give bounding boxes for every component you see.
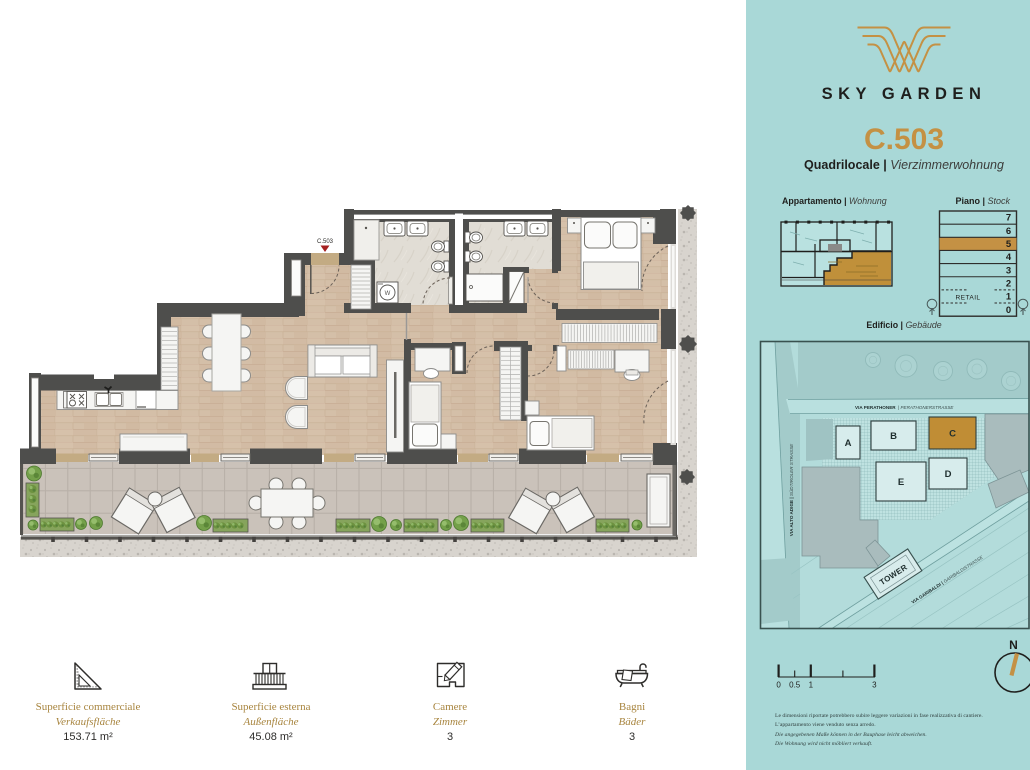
svg-text:0: 0	[776, 681, 781, 690]
svg-text:A: A	[845, 438, 852, 449]
svg-text:3: 3	[872, 681, 877, 690]
svg-text:E: E	[898, 477, 904, 488]
svg-text:B: B	[890, 431, 897, 442]
svg-text:N: N	[1009, 638, 1018, 652]
svg-text:D: D	[945, 469, 952, 480]
svg-text:1: 1	[809, 681, 814, 690]
svg-text:| PERATHONERSTRASSE: | PERATHONERSTRASSE	[898, 405, 954, 410]
svg-text:VIA ALTO ADIGE | SÜDTIROLER ST: VIA ALTO ADIGE | SÜDTIROLER STRASSE	[788, 443, 794, 536]
svg-text:C: C	[949, 429, 956, 440]
svg-text:0.5: 0.5	[789, 681, 801, 690]
svg-text:VIA PERATHONER: VIA PERATHONER	[855, 405, 896, 410]
